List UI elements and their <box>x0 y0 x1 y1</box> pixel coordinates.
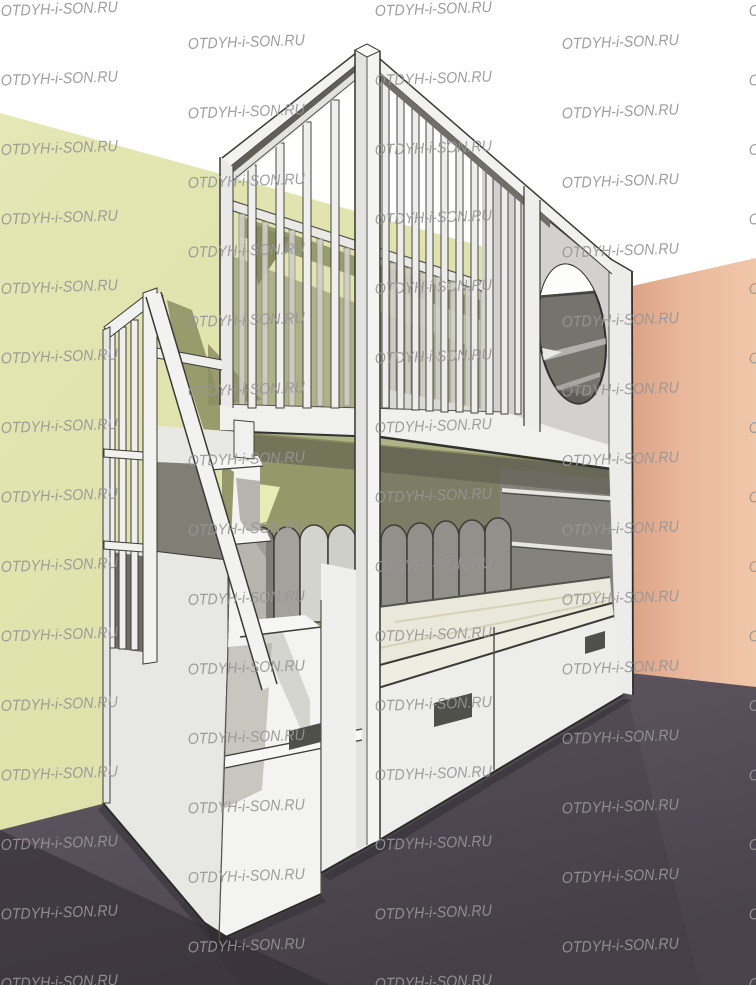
svg-text:OTDYH-i-SON.RU: OTDYH-i-SON.RU <box>749 346 756 367</box>
svg-text:OTDYH-i-SON.RU: OTDYH-i-SON.RU <box>749 624 756 645</box>
svg-text:OTDYH-i-SON.RU: OTDYH-i-SON.RU <box>749 207 756 228</box>
svg-text:OTDYH-i-SON.RU: OTDYH-i-SON.RU <box>749 416 756 437</box>
svg-text:OTDYH-i-SON.RU: OTDYH-i-SON.RU <box>749 138 756 159</box>
svg-text:OTDYH-i-SON.RU: OTDYH-i-SON.RU <box>749 277 756 298</box>
svg-text:OTDYH-i-SON.RU: OTDYH-i-SON.RU <box>749 902 756 923</box>
svg-text:OTDYH-i-SON.RU: OTDYH-i-SON.RU <box>749 763 756 784</box>
svg-text:OTDYH-i-SON.RU: OTDYH-i-SON.RU <box>749 833 756 854</box>
svg-text:OTDYH-i-SON.RU: OTDYH-i-SON.RU <box>749 694 756 715</box>
svg-text:OTDYH-i-SON.RU: OTDYH-i-SON.RU <box>749 555 756 576</box>
svg-text:OTDYH-i-SON.RU: OTDYH-i-SON.RU <box>749 0 756 20</box>
svg-text:OTDYH-i-SON.RU: OTDYH-i-SON.RU <box>749 68 756 89</box>
svg-text:OTDYH-i-SON.RU: OTDYH-i-SON.RU <box>749 485 756 506</box>
